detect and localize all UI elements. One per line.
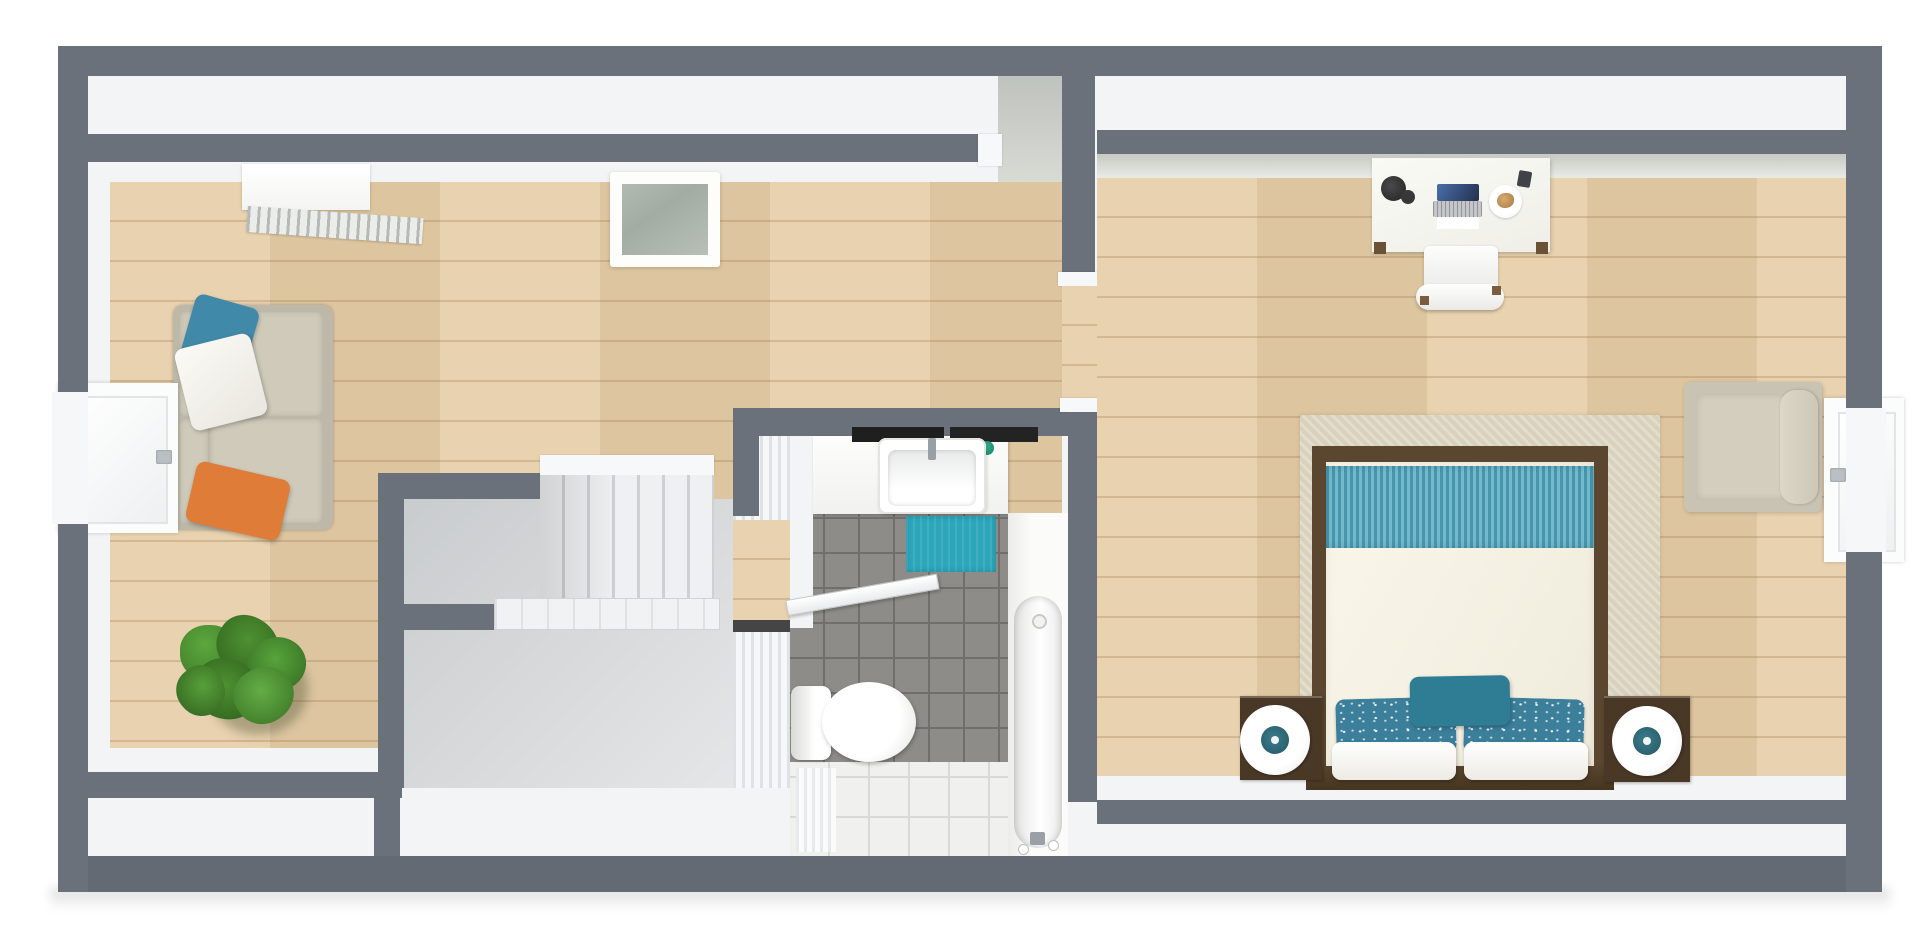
door-threshold [733,520,790,628]
living-bottom-knee-wall [88,772,402,798]
tub-drain-icon [1032,614,1047,629]
white-pillow-right [1464,742,1588,780]
left-window-handle-icon [156,450,172,464]
stair-top-edge [540,455,714,475]
stair-railing [494,598,720,630]
left-window-outer [52,392,88,524]
desk-leg-br [1536,242,1548,254]
knee-wall-end-cap [978,134,1002,166]
tub-knob-left-icon [1018,844,1029,855]
armchair-seat [1696,394,1788,500]
roof-window-glass [622,184,708,255]
bed-foot-bar [1312,446,1608,462]
divider-top-cap [1058,272,1101,286]
laptop-keyboard [1433,201,1482,217]
phone-icon [1517,170,1533,188]
tub-faucet-icon [1030,832,1045,845]
right-window-handle-icon [1830,468,1846,482]
tub-knob-right-icon [1048,840,1059,851]
wall-cabinet [242,164,370,210]
paper-sheet [1437,217,1479,229]
chair-foot-left [1420,296,1429,305]
stairs [540,475,714,614]
teal-blanket-band [1326,466,1594,548]
bathtub-basin [1014,596,1062,848]
chair-foot-right [1492,286,1501,295]
croissant-icon [1497,193,1514,208]
speaker-right-hub-icon [1643,737,1651,745]
accent-pillow [1410,675,1511,727]
armchair-back-cushion [1780,390,1818,504]
floor-plan [0,0,1920,939]
outer-wall-bottom [58,856,1882,892]
toilet-bowl [822,682,916,762]
potted-plant [168,615,318,750]
divider-wall-bottom [1068,412,1097,802]
bathroom-left-wall [733,436,759,516]
laptop-screen [1437,184,1479,201]
deep-wall-face [998,76,1062,182]
divider-wall-top [1062,46,1095,272]
headphones-small-icon [1401,190,1415,204]
stair-left-wall [378,473,404,788]
right-window-outer [1846,408,1886,552]
white-pillow-left [1332,742,1456,780]
outer-wall-top [58,46,1882,76]
teal-bath-mat [906,516,996,572]
bedroom-top-knee-wall [1097,130,1846,154]
stair-top-wall [378,473,562,499]
faucet-icon [928,438,936,460]
balustrade-gap-line [733,620,790,632]
desk-leg-bl [1374,242,1386,254]
striped-bath-mat [796,768,836,852]
desk-chair-back [1416,284,1504,310]
speaker-left-hub-icon [1271,736,1279,744]
living-top-knee-wall [88,134,980,162]
balustrade-panel-lower [733,632,790,788]
bedroom-bottom-knee-wall [1097,800,1846,824]
